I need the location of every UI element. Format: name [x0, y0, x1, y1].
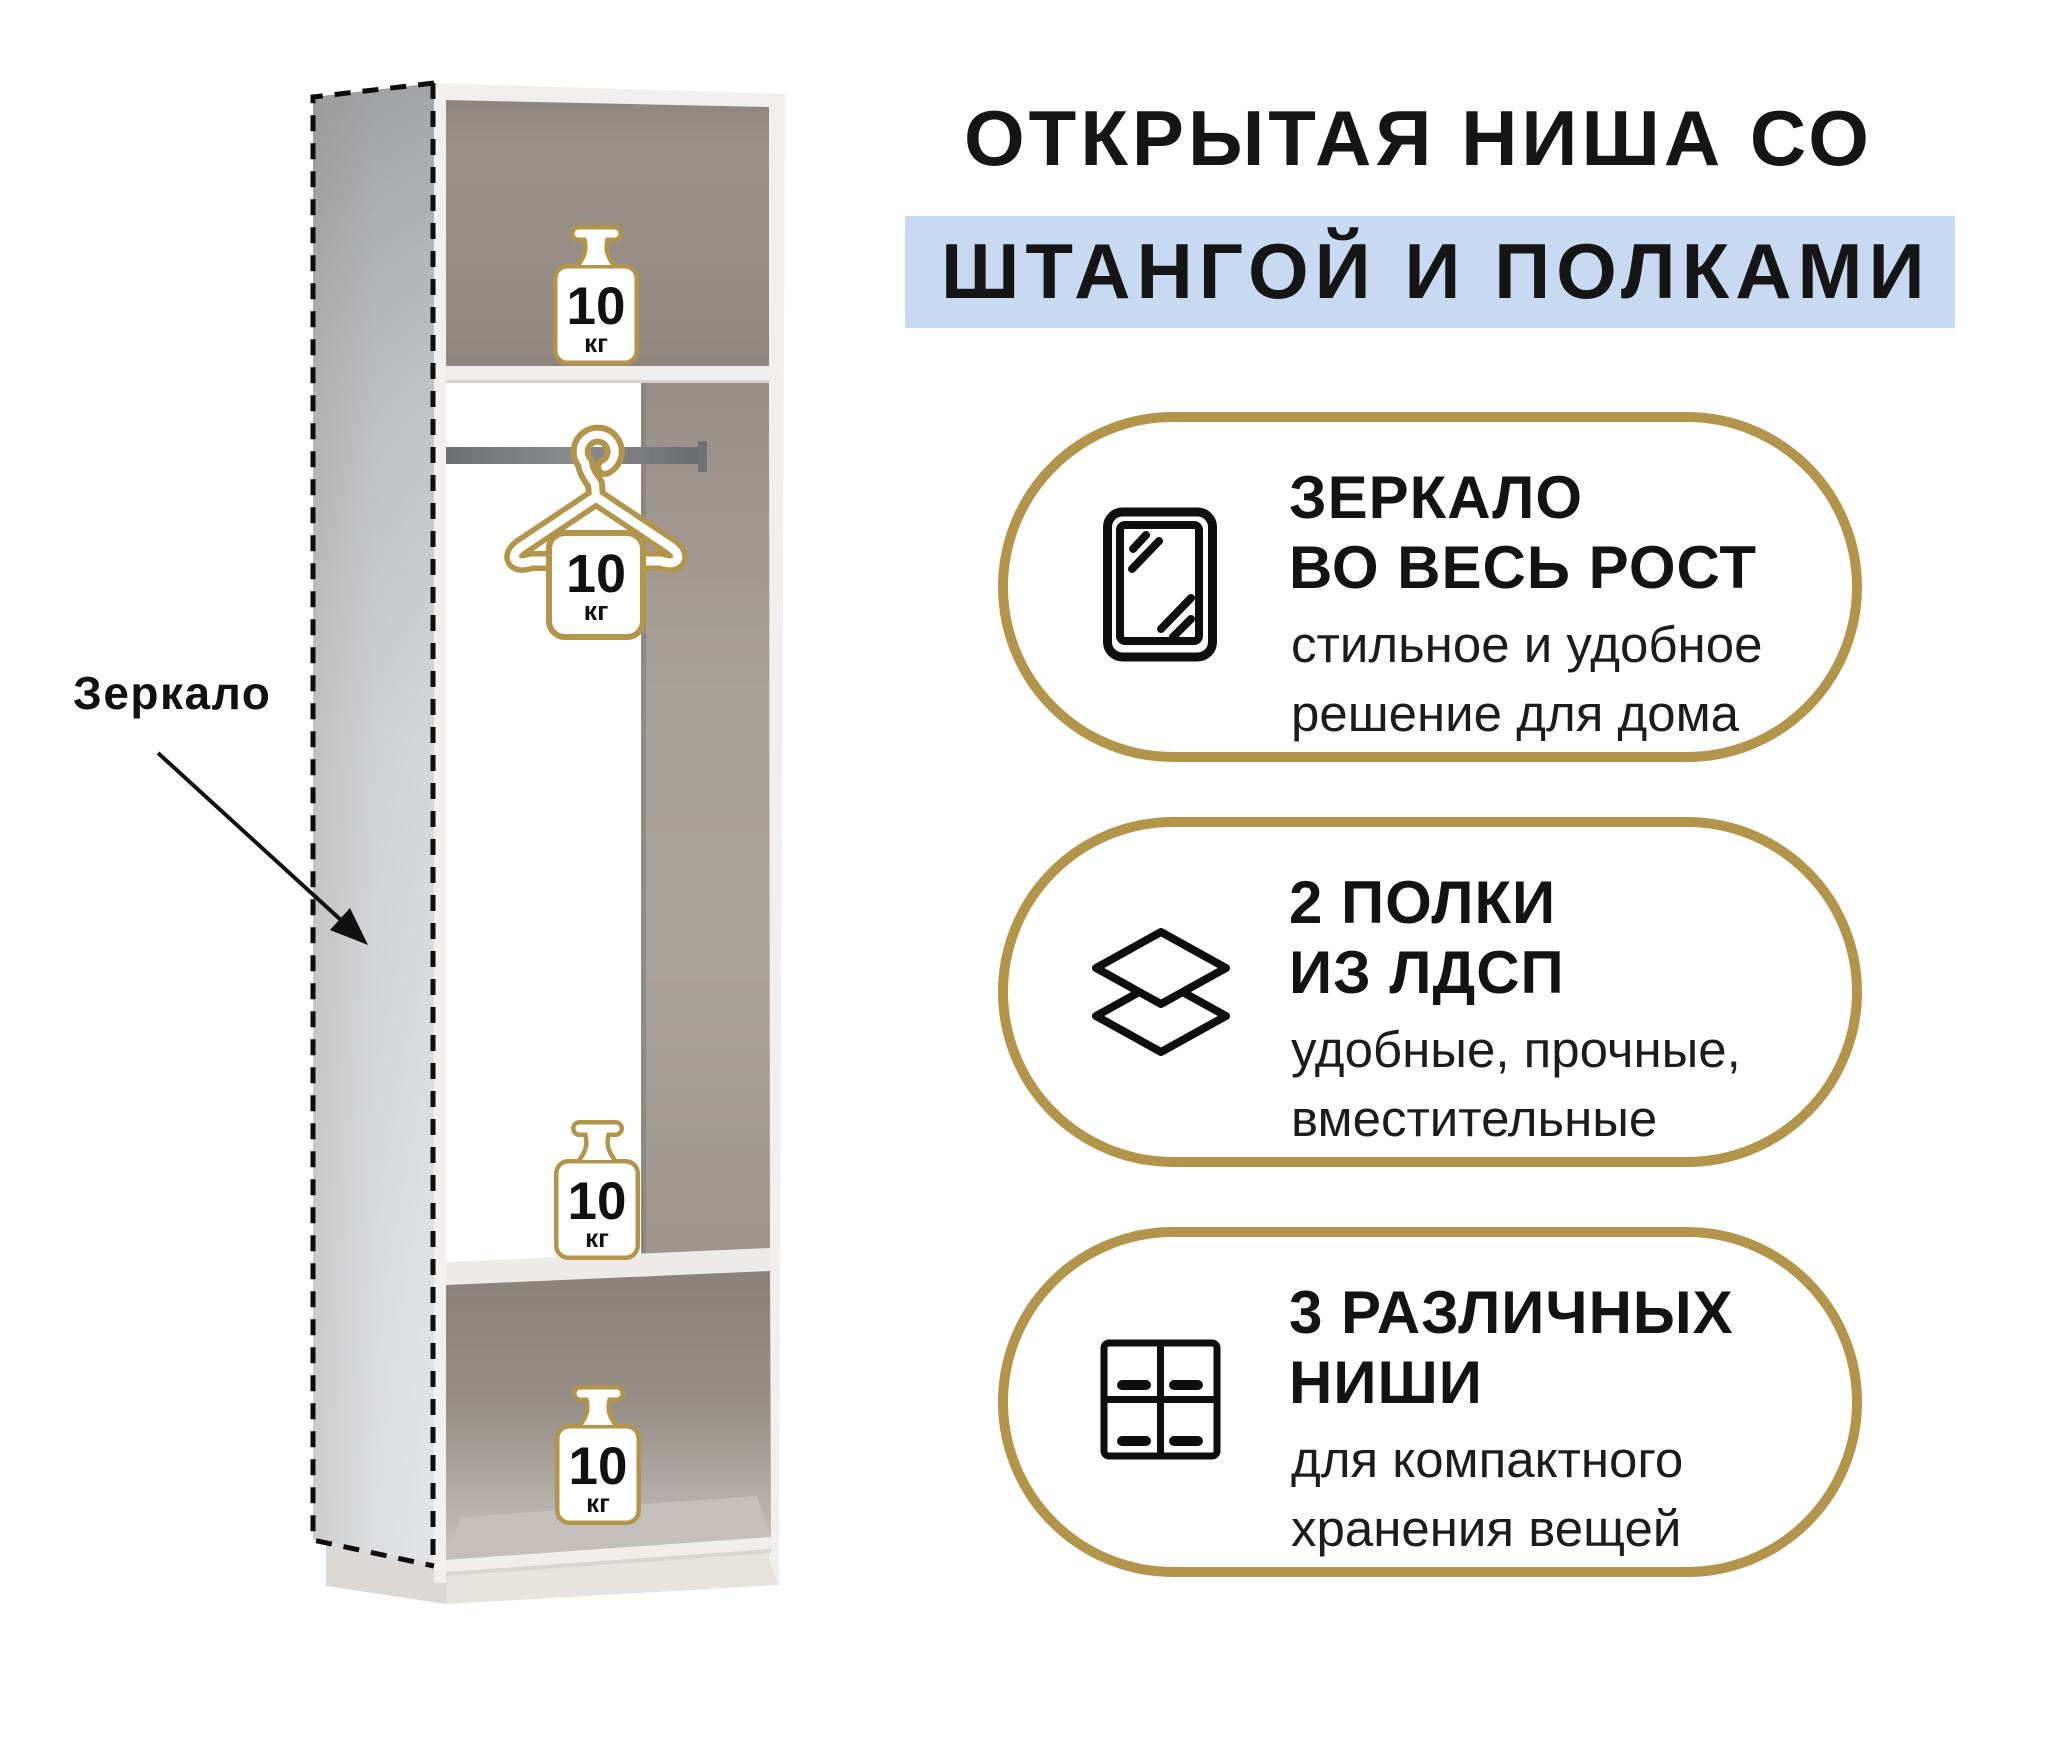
svg-text:кг: кг: [584, 596, 609, 626]
svg-text:10: 10: [566, 544, 626, 604]
svg-text:кг: кг: [584, 328, 608, 358]
svg-text:кг: кг: [586, 1488, 610, 1518]
svg-text:кг: кг: [585, 1223, 609, 1253]
